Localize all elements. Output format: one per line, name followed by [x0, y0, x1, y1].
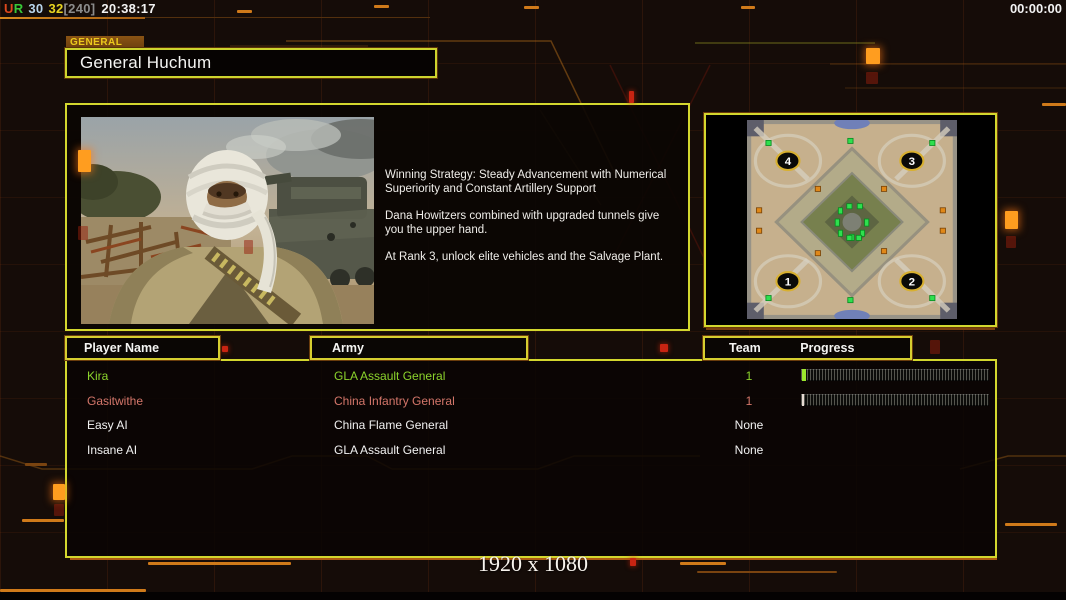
deco-dash	[1005, 523, 1057, 526]
svg-text:3: 3	[909, 156, 915, 168]
army-cell: GLA Assault General	[334, 438, 445, 462]
header-team: Team	[729, 341, 761, 355]
generals-loading-screen: UR3032[240]20:38:17 00:00:00 GENERAL Gen…	[0, 0, 1066, 600]
deco-dash	[374, 5, 389, 8]
progress-bar	[801, 369, 989, 381]
general-name: General Huchum	[67, 50, 435, 76]
deco-square-orange	[78, 150, 91, 172]
deco-square-red-dim	[54, 504, 64, 516]
progress-bar	[801, 394, 989, 406]
deco-square-red-dim	[1006, 236, 1016, 248]
deco-dash	[22, 519, 64, 522]
progress-tick	[802, 394, 804, 406]
deco-square-red	[629, 91, 634, 103]
player-table-panel: KiraGLA Assault General1GasitwitheChina …	[65, 359, 997, 558]
strategy-paragraph: Winning Strategy: Steady Advancement wit…	[385, 168, 699, 196]
strategy-text: Winning Strategy: Steady Advancement wit…	[385, 168, 699, 277]
player-name-cell: Gasitwithe	[87, 389, 143, 413]
general-info-panel: Winning Strategy: Steady Advancement wit…	[65, 103, 690, 331]
start-position-badge: 2	[900, 272, 923, 290]
header-army: Army	[310, 336, 528, 360]
gentool-r: R	[14, 1, 24, 16]
gentool-underline	[0, 17, 145, 19]
deco-dash	[1042, 103, 1066, 106]
army-cell: China Infantry General	[334, 389, 455, 413]
bottom-black-bar	[0, 592, 1066, 600]
deco-square-red-dim	[78, 226, 88, 240]
svg-text:2: 2	[909, 276, 915, 288]
team-cell: 1	[705, 389, 793, 413]
map-preview-panel: 4312	[704, 113, 997, 327]
table-row: KiraGLA Assault General1	[67, 364, 995, 388]
match-timer: 00:00:00	[1010, 1, 1062, 16]
gentool-overlay: UR3032[240]20:38:17	[4, 1, 156, 16]
start-position-badge: 1	[776, 272, 799, 290]
svg-text:1: 1	[785, 276, 792, 288]
deco-square-orange	[866, 48, 880, 64]
gentool-build: 32	[48, 1, 63, 16]
deco-dash	[237, 10, 252, 13]
deco-square-red-dim	[930, 340, 940, 354]
gentool-u: U	[4, 1, 14, 16]
army-cell: GLA Assault General	[334, 364, 445, 388]
army-cell: China Flame General	[334, 413, 448, 437]
map-preview-image: 4312	[747, 120, 957, 319]
map-panel-underline	[706, 328, 995, 330]
gentool-version: 30	[28, 1, 43, 16]
player-name-cell: Kira	[87, 364, 108, 388]
deco-dash	[741, 6, 755, 9]
player-name-cell: Easy AI	[87, 413, 128, 437]
general-portrait	[81, 117, 374, 324]
header-progress: Progress	[800, 341, 854, 355]
gentool-underline-dim	[145, 17, 430, 18]
resolution-label: 1920 x 1080	[0, 551, 1066, 577]
table-row: GasitwitheChina Infantry General1	[67, 389, 995, 413]
deco-square-orange	[53, 484, 65, 500]
strategy-paragraph: Dana Howitzers combined with upgraded tu…	[385, 209, 699, 237]
team-cell: None	[705, 438, 793, 462]
progress-tick	[802, 369, 806, 381]
gentool-clock: 20:38:17	[101, 1, 155, 16]
svg-text:4: 4	[785, 156, 792, 168]
table-row: Insane AIGLA Assault GeneralNone	[67, 438, 995, 462]
deco-square-red-dim	[244, 240, 253, 254]
start-position-badge: 4	[776, 152, 799, 170]
deco-square-red-dim	[866, 72, 878, 84]
gentool-fps: [240]	[64, 1, 96, 16]
strategy-paragraph: At Rank 3, unlock elite vehicles and the…	[385, 250, 699, 264]
team-cell: None	[705, 413, 793, 437]
deco-dash	[25, 463, 47, 466]
general-name-box: General Huchum	[65, 48, 437, 78]
deco-square-red	[222, 346, 228, 352]
deco-dash	[524, 6, 539, 9]
team-cell: 1	[705, 364, 793, 388]
header-player-name: Player Name	[65, 336, 220, 360]
deco-square-red	[660, 344, 668, 352]
player-name-cell: Insane AI	[87, 438, 137, 462]
header-team-progress: Team Progress	[703, 336, 912, 360]
start-position-badge: 3	[900, 152, 923, 170]
deco-square-orange	[1005, 211, 1018, 229]
table-row: Easy AIChina Flame GeneralNone	[67, 413, 995, 437]
